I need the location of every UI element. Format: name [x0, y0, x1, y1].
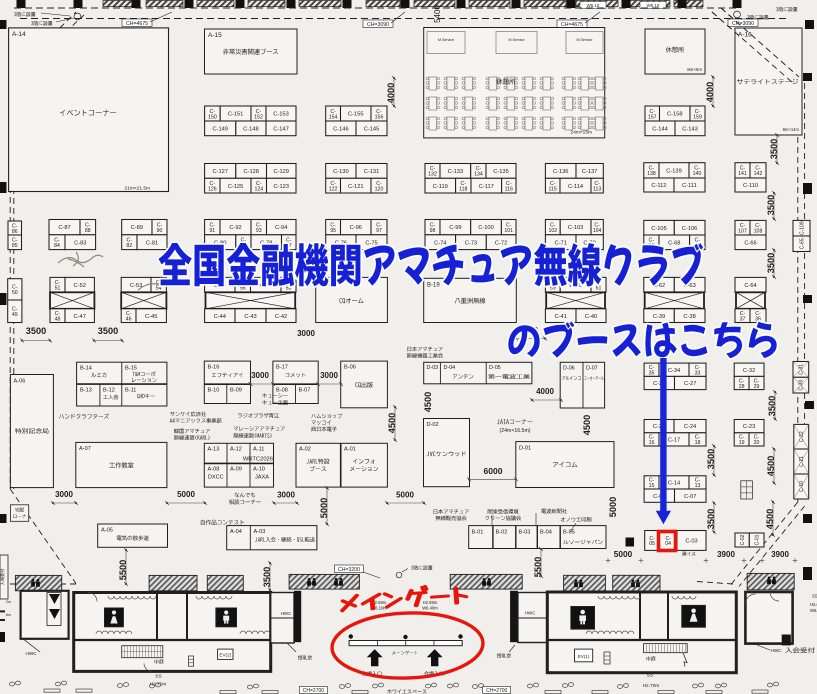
svg-text:156: 156 [375, 114, 384, 120]
svg-text:4000: 4000 [536, 387, 554, 396]
svg-text:C-74: C-74 [434, 240, 446, 246]
svg-text:104: 104 [593, 228, 602, 234]
svg-text:4500: 4500 [387, 413, 397, 433]
svg-text:48: 48 [55, 316, 61, 322]
svg-text:C-71: C-71 [555, 240, 567, 246]
svg-text:C-87: C-87 [58, 225, 70, 231]
svg-text:4500: 4500 [423, 392, 433, 412]
svg-text:C-41: C-41 [555, 314, 567, 320]
svg-text:95: 95 [330, 228, 336, 234]
svg-text:C-52: C-52 [74, 283, 86, 289]
svg-text:4000: 4000 [386, 83, 396, 103]
svg-text:B-19: B-19 [427, 283, 440, 289]
svg-text:C-117: C-117 [479, 184, 494, 190]
svg-text:93: 93 [256, 228, 262, 234]
svg-text:C-21: C-21 [799, 456, 805, 467]
svg-text:3500: 3500 [766, 195, 776, 215]
svg-text:C-42: C-42 [275, 314, 287, 320]
svg-text:A-06: A-06 [14, 379, 26, 385]
svg-text:3000: 3000 [251, 371, 269, 380]
svg-text:C-123: C-123 [273, 184, 289, 190]
svg-text:C-131: C-131 [364, 169, 380, 175]
svg-text:C-137: C-137 [582, 169, 598, 175]
svg-text:98: 98 [430, 228, 436, 234]
svg-text:C-01: C-01 [754, 534, 760, 545]
svg-text:3000: 3000 [320, 371, 338, 380]
svg-text:C-81: C-81 [146, 240, 158, 246]
svg-text:124: 124 [254, 187, 263, 193]
svg-text:D-03: D-03 [427, 365, 439, 371]
svg-text:C-146: C-146 [333, 126, 349, 132]
svg-text:154: 154 [329, 114, 338, 120]
svg-text:5000: 5000 [608, 497, 618, 517]
svg-text:C-129: C-129 [273, 169, 289, 175]
svg-text:C-100: C-100 [478, 225, 494, 231]
svg-text:20: 20 [754, 440, 760, 446]
svg-text:61: 61 [596, 286, 602, 292]
svg-text:CH=4675: CH=4675 [561, 22, 583, 28]
svg-text:CH=2700: CH=2700 [486, 688, 507, 694]
svg-text:CH=4675: CH=4675 [126, 21, 148, 27]
svg-text:M.Service: M.Service [438, 38, 454, 42]
svg-text:28: 28 [739, 384, 745, 390]
svg-text:C-64: C-64 [744, 283, 756, 289]
svg-text:108: 108 [754, 229, 763, 235]
svg-text:37: 37 [740, 316, 746, 322]
svg-text:C-112: C-112 [651, 183, 666, 189]
svg-text:B-17: B-17 [276, 365, 288, 371]
svg-text:A-07: A-07 [79, 446, 91, 452]
svg-text:3500: 3500 [706, 509, 716, 529]
svg-text:152: 152 [254, 114, 263, 120]
svg-text:CH=2700: CH=2700 [303, 688, 324, 694]
svg-text:D-01: D-01 [519, 446, 531, 452]
svg-text:EV(2): EV(2) [219, 653, 231, 658]
svg-text:W5.10: W5.10 [587, 3, 600, 8]
svg-text:4500: 4500 [766, 456, 776, 476]
svg-text:C-10: C-10 [799, 481, 805, 492]
svg-text:C-24: C-24 [684, 424, 696, 430]
svg-text:A-01: A-01 [344, 447, 356, 453]
svg-text:W6.40m: W6.40m [810, 608, 817, 613]
svg-text:141: 141 [738, 171, 747, 177]
svg-text:C-68: C-68 [668, 240, 680, 246]
svg-text:D-05: D-05 [489, 365, 501, 371]
svg-text:5000: 5000 [614, 549, 633, 559]
svg-text:13: 13 [695, 483, 701, 489]
svg-text:46: 46 [126, 316, 132, 322]
svg-text:C-128: C-128 [243, 169, 259, 175]
svg-text:B-06: B-06 [344, 365, 356, 371]
svg-text:B-08: B-08 [276, 388, 288, 394]
svg-text:C-99: C-99 [449, 225, 461, 231]
svg-text:B-07: B-07 [299, 388, 311, 394]
svg-text:A-04: A-04 [230, 529, 242, 535]
svg-text:B-02: B-02 [496, 530, 508, 536]
svg-text:D-04: D-04 [444, 365, 456, 371]
svg-text:A-03: A-03 [254, 529, 266, 535]
svg-text:C-27: C-27 [684, 381, 696, 387]
svg-text:15: 15 [649, 483, 655, 489]
svg-text:C-96: C-96 [350, 225, 362, 231]
svg-text:CH=3090: CH=3090 [367, 22, 389, 28]
svg-text:C-105: C-105 [651, 226, 667, 232]
svg-text:A-02: A-02 [299, 447, 311, 453]
svg-text:H2.69m: H2.69m [810, 602, 817, 607]
svg-text:150: 150 [208, 114, 217, 120]
svg-text:HWC: HWC [26, 651, 38, 656]
svg-text:W6.40m: W6.40m [422, 606, 438, 611]
svg-text:A-16: A-16 [738, 32, 752, 39]
svg-text:C-72: C-72 [495, 240, 507, 246]
svg-text:C-119: C-119 [433, 184, 448, 190]
svg-text:SS: SS [647, 673, 653, 679]
svg-text:M.Service: M.Service [509, 38, 525, 42]
svg-text:107: 107 [738, 229, 747, 235]
svg-text:5400: 5400 [433, 5, 442, 23]
svg-text:C-14: C-14 [668, 481, 680, 487]
svg-text:115: 115 [549, 187, 557, 193]
svg-text:C-30: C-30 [799, 379, 805, 390]
svg-text:116: 116 [505, 187, 513, 193]
svg-text:4500: 4500 [765, 509, 775, 529]
svg-text:91: 91 [209, 228, 215, 234]
svg-text:9m×14m: 9m×14m [783, 127, 800, 132]
svg-text:C-34: C-34 [668, 368, 680, 374]
svg-text:CH=3200: CH=3200 [338, 567, 360, 573]
svg-text:C-114: C-114 [568, 184, 583, 190]
svg-text:16: 16 [649, 440, 655, 446]
svg-text:B-12: B-12 [103, 388, 115, 394]
svg-text:102: 102 [548, 228, 557, 234]
svg-text:C-153: C-153 [273, 112, 289, 118]
svg-text:19: 19 [739, 440, 745, 446]
svg-text:120: 120 [375, 187, 384, 193]
svg-text:101: 101 [504, 228, 513, 234]
svg-text:85: 85 [12, 243, 18, 249]
svg-text:8m×6m: 8m×6m [687, 67, 702, 72]
svg-text:HWC: HWC [281, 611, 292, 616]
svg-text:3000: 3000 [277, 491, 295, 500]
svg-text:C-23: C-23 [743, 424, 755, 430]
svg-text:C-39: C-39 [653, 314, 665, 320]
svg-text:B-16: B-16 [208, 365, 220, 371]
svg-text:88: 88 [85, 228, 91, 234]
svg-text:33: 33 [695, 371, 701, 377]
svg-text:HWC: HWC [525, 611, 536, 616]
svg-text:D-02: D-02 [427, 422, 439, 428]
svg-text:49: 49 [12, 312, 18, 318]
svg-text:C-65: C-65 [799, 238, 805, 249]
svg-text:C-106: C-106 [682, 226, 698, 232]
svg-text:5000: 5000 [177, 490, 195, 499]
svg-text:C-155: C-155 [348, 112, 364, 118]
svg-text:(24m×16.5m): (24m×16.5m) [500, 428, 531, 434]
svg-text:C-47: C-47 [74, 314, 86, 320]
svg-text:C-66: C-66 [744, 240, 756, 246]
svg-text:A-09: A-09 [230, 467, 242, 473]
svg-text:142: 142 [754, 171, 763, 177]
svg-text:18: 18 [695, 440, 701, 446]
svg-text:HWC: HWC [771, 648, 783, 653]
svg-text:5500: 5500 [118, 560, 128, 580]
svg-text:134: 134 [474, 172, 483, 178]
svg-text:C-127: C-127 [212, 169, 228, 175]
svg-text:C-145: C-145 [364, 126, 380, 132]
svg-text:C-03: C-03 [685, 539, 697, 545]
svg-text:C-94: C-94 [275, 225, 287, 231]
svg-text:C-43: C-43 [244, 314, 256, 320]
svg-text:5000: 5000 [319, 498, 329, 518]
svg-text:D-07: D-07 [586, 366, 598, 372]
svg-text:2m: 2m [6, 600, 11, 604]
svg-text:6000: 6000 [484, 466, 503, 476]
svg-text:WRTC2026: WRTC2026 [243, 457, 273, 463]
svg-text:A-05: A-05 [101, 528, 113, 534]
svg-text:90: 90 [157, 228, 163, 234]
svg-text:C-130: C-130 [333, 169, 349, 175]
svg-text:C-149: C-149 [212, 126, 228, 132]
svg-text:3000: 3000 [297, 329, 315, 338]
svg-text:C-110: C-110 [743, 183, 758, 189]
svg-text:W5.10: W5.10 [647, 3, 660, 8]
svg-text:DXCC: DXCC [208, 475, 224, 481]
svg-text:C-103: C-103 [568, 225, 584, 231]
svg-text:51: 51 [55, 286, 61, 292]
svg-text:159: 159 [693, 114, 702, 120]
svg-text:140: 140 [693, 171, 702, 177]
svg-text:29: 29 [754, 384, 760, 390]
svg-text:C-144: C-144 [652, 126, 668, 132]
svg-text:C-151: C-151 [228, 112, 244, 118]
svg-text:C-07: C-07 [684, 494, 696, 500]
svg-text:C-143: C-143 [682, 126, 698, 132]
svg-text:C-44: C-44 [214, 314, 226, 320]
svg-text:EV(1): EV(1) [578, 654, 590, 659]
svg-text:C-125: C-125 [228, 184, 244, 190]
svg-text:C-17: C-17 [668, 438, 680, 444]
svg-text:C-73: C-73 [465, 240, 477, 246]
svg-text:4000: 4000 [705, 82, 715, 102]
svg-text:A-08: A-08 [208, 467, 220, 473]
svg-text:21m×21.5m: 21m×21.5m [125, 186, 150, 192]
svg-text:B-05: B-05 [563, 530, 575, 536]
svg-text:B-11: B-11 [125, 388, 136, 394]
svg-text:C-38: C-38 [683, 314, 695, 320]
svg-text:82: 82 [126, 243, 132, 249]
svg-text:B-13: B-13 [80, 388, 92, 394]
svg-text:A-10: A-10 [253, 467, 265, 473]
svg-text:B-10: B-10 [208, 388, 220, 394]
svg-text:M.Service: M.Service [577, 38, 593, 42]
svg-text:CH=3090: CH=3090 [732, 21, 754, 27]
svg-text:5000: 5000 [396, 491, 414, 500]
svg-text:C-02: C-02 [740, 534, 746, 545]
svg-text:SS: SS [812, 594, 817, 599]
svg-text:C-147: C-147 [273, 126, 289, 132]
svg-text:3500: 3500 [706, 449, 716, 469]
svg-text:A-12: A-12 [230, 447, 242, 453]
svg-text:C-133: C-133 [448, 169, 464, 175]
svg-text:3500: 3500 [262, 567, 272, 587]
svg-text:C-135: C-135 [493, 169, 509, 175]
svg-text:A-14: A-14 [12, 31, 26, 38]
svg-text:113: 113 [593, 187, 601, 193]
svg-text:C-111: C-111 [682, 183, 697, 189]
svg-text:122: 122 [329, 187, 338, 193]
svg-text:3500: 3500 [769, 139, 779, 159]
svg-text:3500: 3500 [766, 253, 776, 273]
svg-text:JAXA: JAXA [255, 475, 269, 481]
svg-text:04: 04 [665, 541, 671, 547]
svg-text:126: 126 [208, 187, 217, 193]
svg-text:35: 35 [649, 371, 655, 377]
svg-text:C-32: C-32 [743, 368, 755, 374]
svg-text:C-31: C-31 [799, 364, 805, 375]
svg-text:C-22: C-22 [799, 431, 805, 442]
svg-text:3500: 3500 [98, 326, 118, 336]
svg-text:B-14: B-14 [80, 366, 92, 372]
svg-text:84: 84 [54, 243, 60, 249]
svg-text:C-136: C-136 [553, 169, 569, 175]
svg-text:A-13: A-13 [208, 447, 220, 453]
svg-text:C-139: C-139 [666, 168, 682, 174]
svg-text:A-15: A-15 [208, 32, 222, 39]
svg-text:3900: 3900 [717, 550, 735, 559]
svg-text:C-109: C-109 [799, 221, 805, 235]
svg-text:SS: SS [155, 674, 161, 680]
svg-text:C-158: C-158 [667, 112, 683, 118]
svg-text:97: 97 [376, 228, 382, 234]
svg-text:B-03: B-03 [519, 530, 531, 536]
svg-text:B-15: B-15 [125, 366, 137, 372]
svg-text:B-01: B-01 [472, 530, 484, 536]
svg-text:4500: 4500 [582, 415, 592, 435]
svg-text:H2.70m: H2.70m [643, 683, 660, 689]
svg-text:86: 86 [12, 229, 18, 235]
svg-text:C-148: C-148 [243, 126, 259, 132]
svg-text:118: 118 [459, 187, 467, 193]
svg-text:5500: 5500 [533, 557, 543, 577]
svg-text:A-11: A-11 [253, 447, 264, 453]
svg-text:3000: 3000 [55, 490, 73, 499]
svg-text:C-92: C-92 [229, 225, 241, 231]
svg-text:B-04: B-04 [540, 530, 552, 536]
svg-text:6m: 6m [6, 613, 11, 617]
svg-text:B-09: B-09 [230, 388, 242, 394]
svg-text:D-06: D-06 [563, 366, 575, 372]
svg-text:132: 132 [428, 172, 437, 178]
svg-text:C-40: C-40 [585, 314, 597, 320]
svg-text:H2.69m: H2.69m [423, 600, 438, 605]
svg-text:05: 05 [649, 541, 655, 547]
svg-text:50: 50 [12, 290, 18, 296]
svg-text:3900: 3900 [771, 550, 789, 559]
svg-text:138: 138 [647, 171, 656, 177]
svg-text:C-45: C-45 [145, 314, 157, 320]
svg-text:C-89: C-89 [131, 225, 143, 231]
svg-text:C-83: C-83 [74, 240, 86, 246]
svg-text:C-121: C-121 [348, 184, 364, 190]
svg-text:3500: 3500 [26, 326, 46, 336]
svg-text:3500: 3500 [767, 396, 777, 416]
svg-text:157: 157 [648, 114, 657, 120]
